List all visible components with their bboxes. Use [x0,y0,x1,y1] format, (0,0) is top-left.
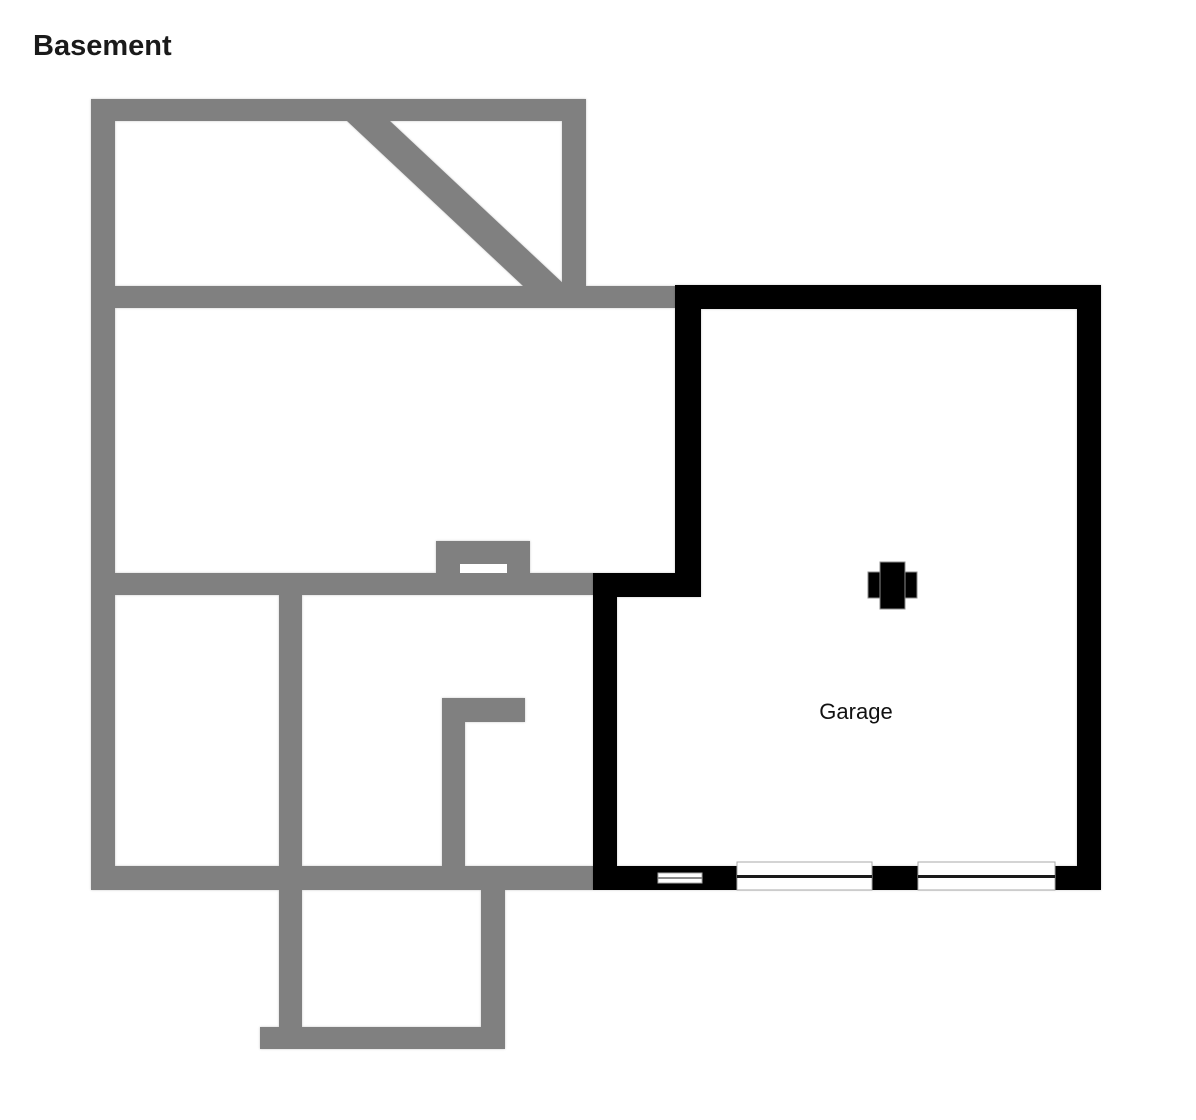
top-wall [91,99,586,121]
garage-walls-group [593,285,1101,890]
left-wall [91,99,115,890]
garage-right-wall [1077,285,1101,890]
diagonal-wall [347,121,566,286]
garage-window-left-bar [737,875,872,878]
garage-room-label: Garage [819,699,892,725]
stair-extension-right-wall [481,890,505,1027]
stair-extension-left-wall [279,890,302,1027]
basement-walls-group [91,99,675,1049]
upper-mid-wall [91,286,675,308]
garage-top-wall [675,285,1101,309]
top-room-right-wall [562,99,586,286]
l-wall-vertical [442,722,465,890]
garage-window-right-bar [918,875,1055,878]
garage-left-upper-wall [675,285,701,597]
basement-floorplan-page: Basement Garage [0,0,1196,1120]
bottom-wall [91,866,593,890]
room-divider-wall [279,573,302,890]
l-wall-horizontal [442,698,525,722]
chimney-slot-opening [460,564,507,573]
garage-column-symbol [868,562,917,609]
wall-openings-group [460,564,1055,890]
floorplan-drawing [0,0,1196,1120]
mid-wall [91,573,593,595]
stair-extension-bottom-wall [260,1027,505,1049]
column-center-post [880,562,905,609]
garage-left-lower-wall [593,573,617,890]
column-right-flange [905,572,917,598]
column-left-flange [868,572,880,598]
garage-small-window-bar [658,877,702,879]
